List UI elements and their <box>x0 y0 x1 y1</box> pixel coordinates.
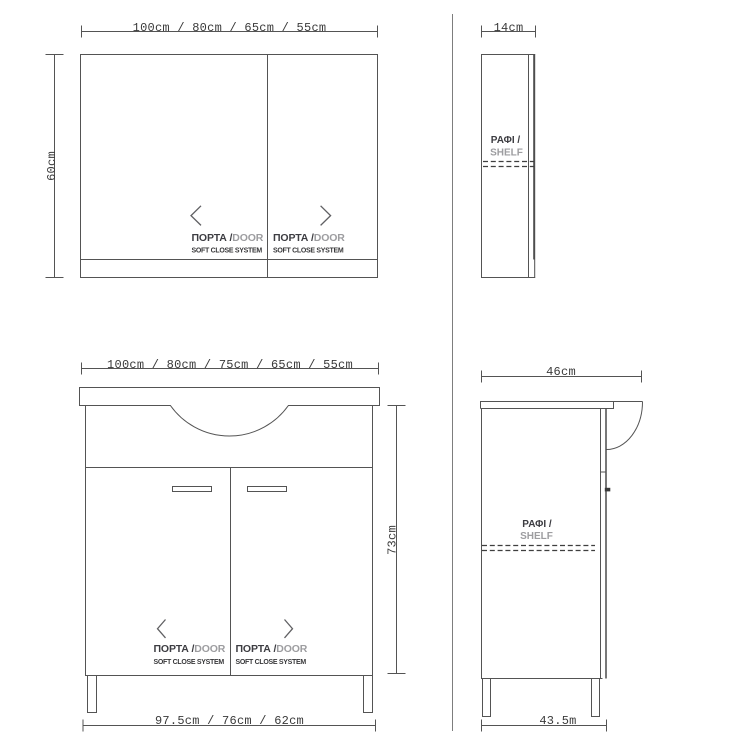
svg-text:100cm / 80cm / 75cm / 65cm / 5: 100cm / 80cm / 75cm / 65cm / 55cm <box>107 358 353 372</box>
svg-text:14cm: 14cm <box>494 21 524 35</box>
svg-text:ΠΟΡΤΑ /DOOR: ΠΟΡΤΑ /DOOR <box>236 643 308 655</box>
svg-text:ΠΟΡΤΑ /DOOR: ΠΟΡΤΑ /DOOR <box>154 643 226 655</box>
svg-text:SHELF: SHELF <box>520 531 553 542</box>
svg-text:97.5cm / 76cm / 62cm: 97.5cm / 76cm / 62cm <box>155 714 304 728</box>
svg-text:100cm / 80cm / 65cm / 55cm: 100cm / 80cm / 65cm / 55cm <box>133 21 327 35</box>
svg-text:46cm: 46cm <box>546 365 576 379</box>
svg-text:SHELF: SHELF <box>490 147 523 158</box>
svg-text:ΡΑΦΙ /: ΡΑΦΙ / <box>491 135 521 146</box>
svg-text:43.5m: 43.5m <box>539 714 576 728</box>
svg-text:ΡΑΦΙ /: ΡΑΦΙ / <box>522 519 552 530</box>
svg-text:60cm: 60cm <box>45 151 59 181</box>
svg-text:73cm: 73cm <box>386 525 400 555</box>
svg-text:ΠΟΡΤΑ /DOOR: ΠΟΡΤΑ /DOOR <box>192 232 264 244</box>
svg-text:SOFT CLOSE SYSTEM: SOFT CLOSE SYSTEM <box>273 248 344 255</box>
svg-text:SOFT CLOSE SYSTEM: SOFT CLOSE SYSTEM <box>236 659 307 666</box>
svg-text:SOFT CLOSE SYSTEM: SOFT CLOSE SYSTEM <box>154 659 225 666</box>
svg-text:SOFT CLOSE SYSTEM: SOFT CLOSE SYSTEM <box>192 248 263 255</box>
svg-text:ΠΟΡΤΑ /DOOR: ΠΟΡΤΑ /DOOR <box>273 232 345 244</box>
